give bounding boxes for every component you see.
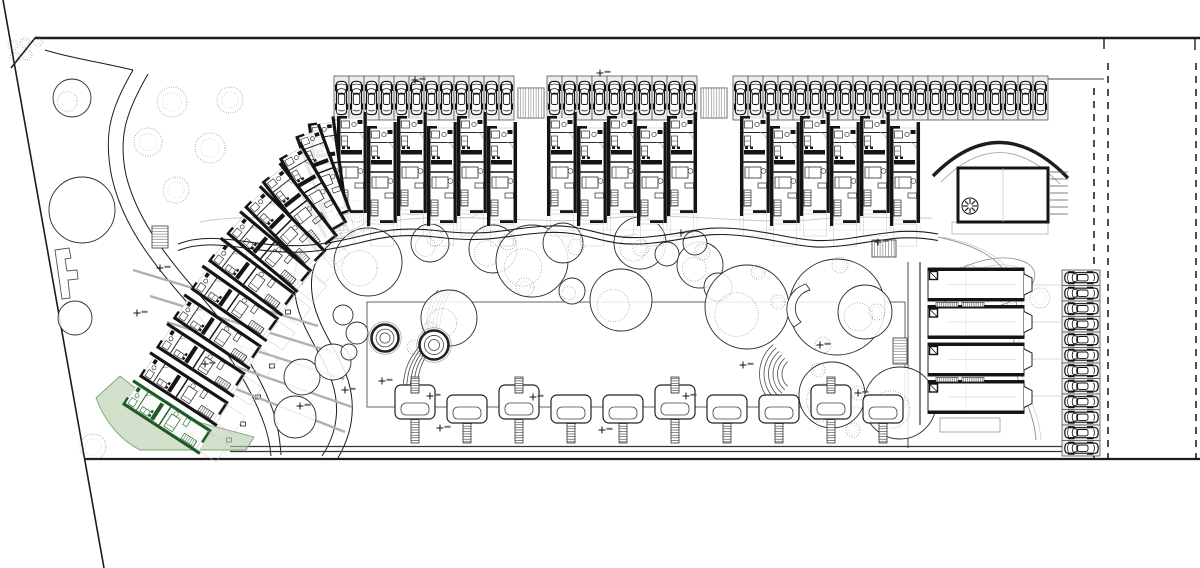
pergola-structure — [395, 377, 435, 443]
tree — [705, 265, 789, 349]
car-icon — [1065, 364, 1098, 377]
tree — [334, 228, 402, 296]
car-icon — [395, 81, 408, 114]
elevation-marker — [134, 310, 148, 317]
car-icon — [809, 81, 822, 114]
bush — [134, 128, 162, 156]
quad-building — [920, 262, 1062, 432]
bush — [163, 177, 189, 203]
car-icon — [440, 81, 453, 114]
bush — [217, 87, 243, 113]
townhouse-unit — [367, 122, 397, 246]
car-icon — [854, 81, 867, 114]
car-icon — [1065, 442, 1098, 455]
tree — [341, 344, 357, 360]
townhouse-unit — [547, 112, 577, 236]
car-icon — [1065, 302, 1098, 315]
tree — [559, 278, 585, 304]
car-icon — [944, 81, 957, 114]
car-icon — [869, 81, 882, 114]
bush — [1030, 288, 1050, 308]
car-icon — [734, 81, 747, 114]
car-icon — [335, 81, 348, 114]
pergola-structure — [603, 395, 643, 443]
bush — [846, 423, 860, 437]
car-icon — [548, 81, 561, 114]
spa-pool — [417, 328, 452, 363]
tree — [333, 305, 353, 325]
parking-row-top — [334, 76, 1048, 120]
pergola-structure — [447, 395, 487, 443]
townhouse-unit — [577, 122, 607, 246]
tree — [655, 242, 679, 266]
townhouse-unit — [740, 112, 770, 236]
site-plan-drawing — [0, 0, 1200, 568]
car-icon — [1065, 426, 1098, 439]
townhouse-unit — [800, 112, 830, 236]
car-icon — [380, 81, 393, 114]
car-icon — [653, 81, 666, 114]
apartment-unit — [928, 268, 1032, 301]
car-icon — [485, 81, 498, 114]
tree — [49, 177, 115, 243]
pergola-structure — [707, 395, 747, 443]
pergola-structure — [551, 395, 591, 443]
car-icon — [593, 81, 606, 114]
tree — [683, 231, 707, 255]
car-icon — [899, 81, 912, 114]
car-icon — [794, 81, 807, 114]
bush — [8, 40, 18, 50]
tree — [346, 322, 368, 344]
car-icon — [839, 81, 852, 114]
car-icon — [929, 81, 942, 114]
car-icon — [884, 81, 897, 114]
tree — [58, 301, 92, 335]
bush — [10, 52, 20, 62]
fan-icon — [962, 198, 978, 214]
car-icon — [668, 81, 681, 114]
car-icon — [638, 81, 651, 114]
car-icon — [623, 81, 636, 114]
elevation-marker — [599, 427, 613, 434]
townhouse-group — [740, 110, 920, 246]
car-icon — [1019, 81, 1032, 114]
car-icon — [914, 81, 927, 114]
apartment-unit — [928, 343, 1032, 376]
site-plan-screenshot — [0, 0, 1200, 568]
car-icon — [425, 81, 438, 114]
car-icon — [1065, 395, 1098, 408]
bush — [195, 133, 225, 163]
car-icon — [764, 81, 777, 114]
spa-pool — [369, 322, 402, 355]
pergola-structure — [759, 395, 799, 443]
apartment-unit — [928, 302, 1032, 338]
tree — [838, 285, 892, 339]
car-icon — [608, 81, 621, 114]
car-icon — [1065, 287, 1098, 300]
elevation-marker — [437, 425, 451, 432]
pergola-structure — [655, 377, 695, 443]
car-icon — [1034, 81, 1047, 114]
tree — [274, 396, 316, 438]
car-icon — [410, 81, 423, 114]
elevation-marker — [342, 387, 356, 394]
car-icon — [350, 81, 363, 114]
bush — [157, 87, 187, 117]
townhouse-unit — [890, 122, 920, 246]
townhouse-wing-diagonal — [119, 116, 359, 464]
tree — [590, 269, 652, 331]
car-icon — [779, 81, 792, 114]
apartment-unit — [928, 377, 1032, 413]
pergola-structure — [499, 377, 539, 443]
car-icon — [959, 81, 972, 114]
car-icon — [1065, 271, 1098, 284]
car-icon — [1065, 333, 1098, 346]
car-icon — [1004, 81, 1017, 114]
pergola-structure — [811, 377, 851, 443]
tree — [53, 79, 91, 117]
car-icon — [1065, 318, 1098, 331]
car-icon — [1065, 380, 1098, 393]
car-icon — [455, 81, 468, 114]
car-icon — [365, 81, 378, 114]
car-icon — [749, 81, 762, 114]
townhouse-unit — [397, 112, 427, 236]
car-icon — [1065, 349, 1098, 362]
left-grounds — [55, 248, 78, 299]
car-icon — [974, 81, 987, 114]
tree — [284, 359, 320, 395]
existing-building-outline — [55, 248, 78, 299]
parking-group — [733, 76, 1048, 120]
car-icon — [578, 81, 591, 114]
car-icon — [563, 81, 576, 114]
townhouse-unit — [770, 122, 800, 246]
car-icon — [500, 81, 513, 114]
car-icon — [989, 81, 1002, 114]
parking-column-right — [1062, 270, 1100, 456]
car-icon — [824, 81, 837, 114]
car-icon — [470, 81, 483, 114]
parking-group — [547, 76, 697, 120]
car-icon — [1065, 411, 1098, 424]
townhouse-unit — [830, 122, 860, 246]
car-icon — [683, 81, 696, 114]
elevation-marker — [157, 265, 171, 272]
elevation-marker — [597, 70, 611, 77]
